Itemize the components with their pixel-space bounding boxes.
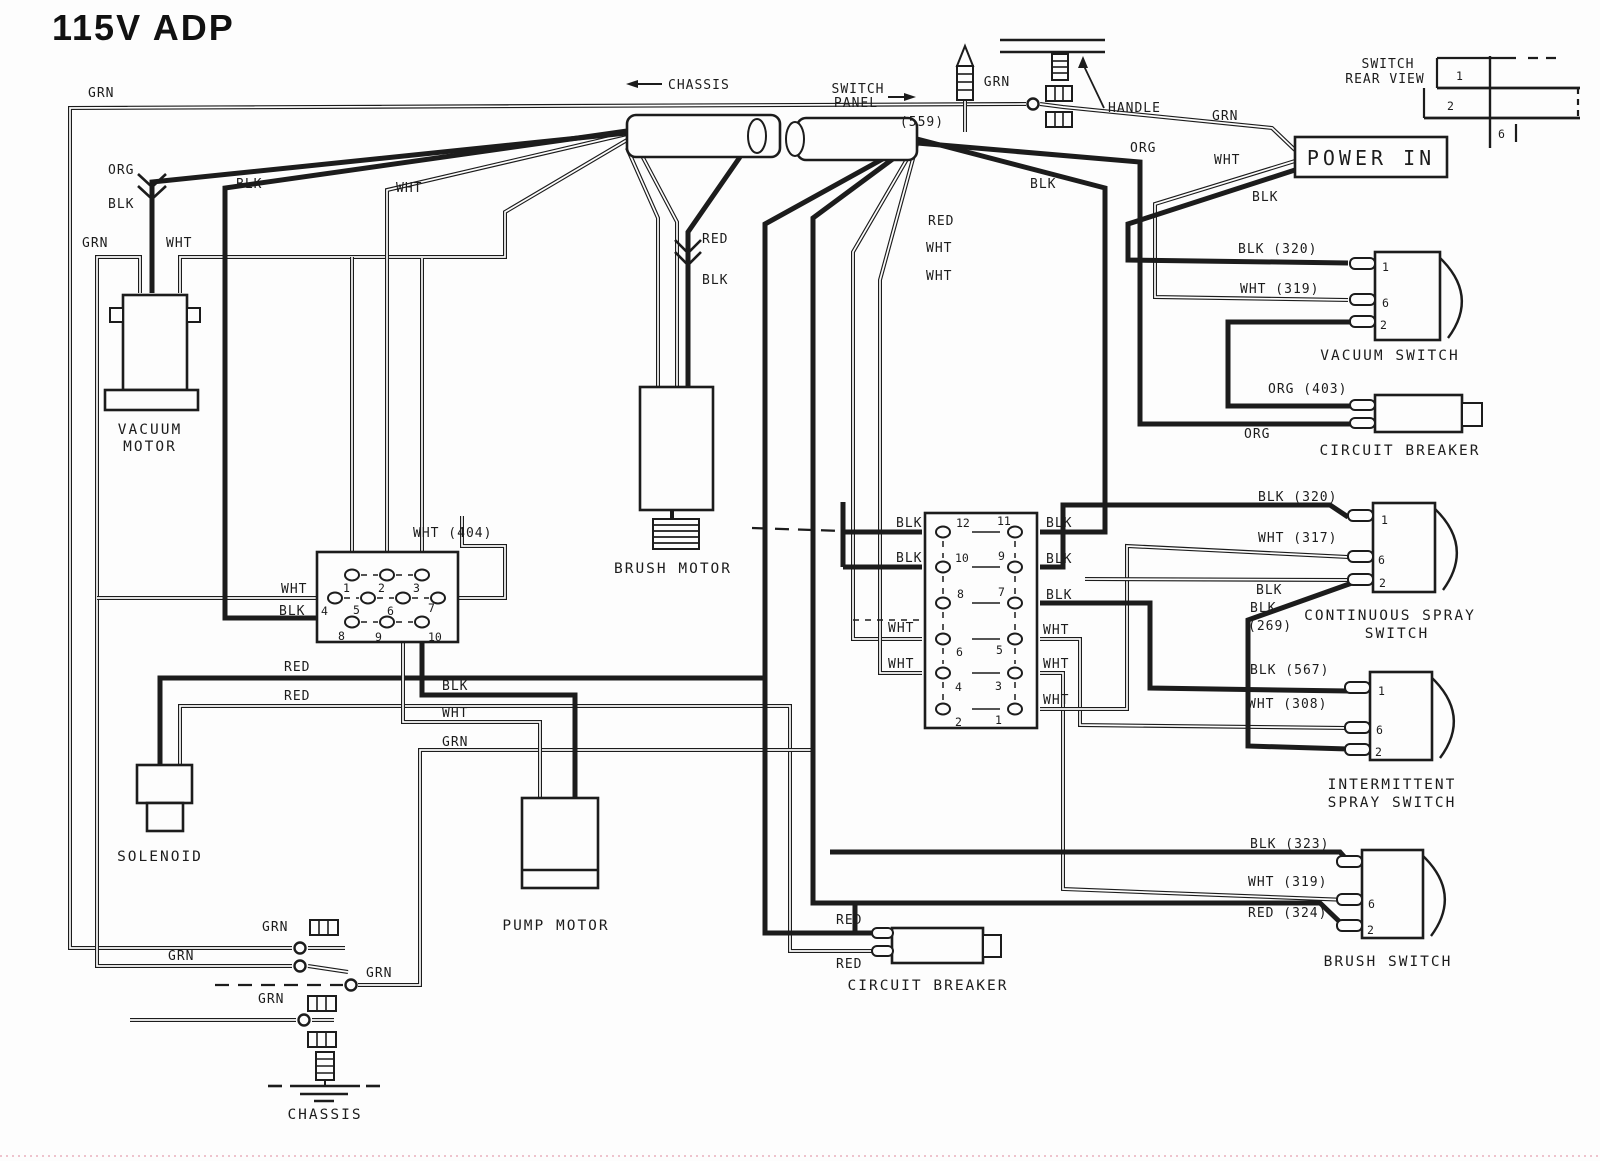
brush-switch-t6: 6 [1368, 897, 1375, 911]
wire-label: GRN [1212, 109, 1238, 124]
vacuum-switch: 1 6 2 VACUUM SWITCH [1320, 252, 1462, 364]
wire-label: GRN [82, 236, 108, 251]
vacuum-switch-t1: 1 [1382, 260, 1389, 274]
bullet-connector-icon [1028, 99, 1039, 110]
vacuum-motor-label-2: MOTOR [123, 439, 177, 455]
wire-label: BLK [702, 273, 728, 288]
lb-terminal-10: 10 [428, 630, 442, 644]
wire-label: BLK (323) [1250, 837, 1329, 852]
switch-panel-harness-sleeve: SWITCH PANEL [786, 82, 917, 160]
lb-terminal-7: 7 [428, 601, 435, 615]
wire-label: ORG (403) [1268, 382, 1347, 397]
brush-motor-label: BRUSH MOTOR [614, 561, 732, 577]
handle-assembly: HANDLE GRN (559) [900, 40, 1161, 130]
intermittent-switch-t1: 1 [1378, 684, 1385, 698]
plug-connector-icon [308, 996, 336, 1011]
wire-label: RED [928, 214, 954, 229]
rb-terminal-1: 1 [995, 713, 1002, 727]
vacuum-switch-t2: 2 [1380, 318, 1387, 332]
wire-label: BLK [279, 604, 305, 619]
plug-connector-icon [308, 1032, 336, 1047]
grn-559-label: GRN [984, 75, 1010, 90]
wire-label: BLK [1252, 190, 1278, 205]
intermittent-switch-label-2: SPRAY SWITCH [1328, 795, 1457, 811]
brush-switch-t2: 2 [1367, 923, 1374, 937]
wire-label: BLK [236, 177, 262, 192]
bullet-connector-icon [346, 980, 357, 991]
wire-label: GRN [168, 949, 194, 964]
right-terminal-block: 12 11 10 9 8 7 6 5 4 3 2 1 [925, 513, 1037, 729]
rb-terminal-3: 3 [995, 679, 1002, 693]
continuous-switch-t2: 2 [1379, 576, 1386, 590]
switch-panel-label-2: PANEL [834, 96, 878, 111]
wiring-diagram-canvas: CHASSIS SWITCH PANEL HANDLE [0, 0, 1600, 1161]
wire-label: ORG [108, 163, 134, 178]
switch-panel-label-1: SWITCH [832, 82, 885, 97]
wiring-diagram-page: CHASSIS SWITCH PANEL HANDLE [0, 0, 1600, 1161]
wire-label: RED (324) [1248, 906, 1327, 921]
brush-switch-label: BRUSH SWITCH [1324, 954, 1453, 970]
wire-label: WHT [1043, 657, 1069, 672]
wire-label: RED [836, 957, 862, 972]
chassis-harness-label: CHASSIS [668, 78, 730, 93]
wire-label: BLK [1046, 588, 1072, 603]
rb-terminal-6: 6 [956, 645, 963, 659]
brush-block-icon [653, 519, 699, 549]
power-in-label: POWER IN [1307, 146, 1435, 170]
ground-icon [268, 1086, 380, 1101]
wire-label: BLK [1256, 583, 1282, 598]
arrow-left-icon [626, 80, 638, 88]
plug-connector-icon [1046, 86, 1072, 101]
wire-label: BLK [442, 679, 468, 694]
chassis-harness-sleeve: CHASSIS [626, 78, 780, 157]
bullet-connector-icon [295, 961, 306, 972]
lb-terminal-4: 4 [321, 604, 328, 618]
lb-terminal-8: 8 [338, 629, 345, 643]
wire-label: WHT (317) [1258, 531, 1337, 546]
intermittent-switch-label-1: INTERMITTENT [1328, 777, 1457, 793]
vacuum-motor-label-1: VACUUM [118, 422, 182, 438]
lb-terminal-5: 5 [353, 603, 360, 617]
wire-label: WHT (319) [1240, 282, 1319, 297]
plug-connector-icon [1046, 112, 1072, 127]
wire-label: BLK (320) [1238, 242, 1317, 257]
lb-terminal-6: 6 [387, 604, 394, 618]
brush-motor: BRUSH MOTOR [614, 387, 732, 577]
rb-terminal-10: 10 [955, 551, 969, 565]
continuous-switch-label-2: SWITCH [1365, 626, 1429, 642]
rear-view-terminal-6: 6 [1498, 127, 1505, 141]
grn-559-ref: (559) [900, 115, 944, 130]
wire-label: (269) [1248, 619, 1292, 634]
intermittent-switch-t6: 6 [1376, 723, 1383, 737]
vacuum-switch-label: VACUUM SWITCH [1320, 348, 1460, 364]
wire-label: BLK [108, 197, 134, 212]
rb-terminal-2: 2 [955, 715, 962, 729]
rear-view-label-1: SWITCH [1362, 57, 1415, 72]
pump-motor: PUMP MOTOR [502, 798, 609, 934]
plug-connector-icon [310, 920, 338, 935]
rb-terminal-11: 11 [997, 514, 1011, 528]
wire-label: WHT [1214, 153, 1240, 168]
intermittent-spray-switch: 1 6 2 INTERMITTENT SPRAY SWITCH [1328, 672, 1457, 811]
lb-terminal-2: 2 [378, 581, 385, 595]
wire-label: WHT [888, 657, 914, 672]
wire-label: BLK [1046, 516, 1072, 531]
wire-label: GRN [262, 920, 288, 935]
page-title: 115V ADP [52, 7, 235, 48]
wire-label: ORG [1244, 427, 1270, 442]
vacuum-switch-t6: 6 [1382, 296, 1389, 310]
wire-label: ORG [1130, 141, 1156, 156]
bullet-connector-icon [299, 1015, 310, 1026]
switch-rear-view: SWITCH REAR VIEW 1 2 6 [1345, 56, 1580, 148]
wire-label: BLK (567) [1250, 663, 1329, 678]
wire-label: WHT [926, 269, 952, 284]
wire-label: WHT [442, 706, 468, 721]
circuit-breaker-right-label: CIRCUIT BREAKER [1320, 443, 1481, 459]
pump-motor-label: PUMP MOTOR [502, 918, 609, 934]
continuous-switch-t1: 1 [1381, 513, 1388, 527]
wire-label: GRN [442, 735, 468, 750]
wiring-thick [152, 131, 1352, 933]
arrow-up-icon [1078, 56, 1088, 68]
wire-label: WHT [1043, 693, 1069, 708]
wire-label: GRN [366, 966, 392, 981]
wire-label: BLK [1046, 552, 1072, 567]
wire-label: WHT (319) [1248, 875, 1327, 890]
lb-terminal-1: 1 [343, 581, 350, 595]
wire-label: RED [284, 689, 310, 704]
wire-label: BLK (320) [1258, 490, 1337, 505]
rb-terminal-9: 9 [998, 549, 1005, 563]
wire-label: WHT [888, 621, 914, 636]
rear-view-label-2: REAR VIEW [1345, 72, 1424, 87]
bullet-connector-icon [295, 943, 306, 954]
wire-label: BLK [896, 516, 922, 531]
vacuum-motor: VACUUM MOTOR [105, 295, 200, 455]
wire-label: RED [284, 660, 310, 675]
wire-label: RED [836, 913, 862, 928]
wire-label: GRN [258, 992, 284, 1007]
bolt-icon [957, 46, 973, 100]
screw-icon [1052, 54, 1068, 80]
chassis-ground-label: CHASSIS [287, 1107, 362, 1123]
continuous-switch-t6: 6 [1378, 553, 1385, 567]
left-terminal-block: 1 2 3 4 5 6 7 8 9 10 [317, 552, 458, 644]
wire-label: WHT [926, 241, 952, 256]
wire-label: GRN [88, 86, 114, 101]
rear-view-terminal-2: 2 [1447, 99, 1454, 113]
circuit-breaker-bottom-label: CIRCUIT BREAKER [848, 978, 1009, 994]
solenoid-label: SOLENOID [117, 849, 203, 865]
lb-terminal-9: 9 [375, 630, 382, 644]
continuous-switch-label-1: CONTINUOUS SPRAY [1304, 608, 1476, 624]
power-in-block: POWER IN [1295, 137, 1447, 177]
intermittent-switch-t2: 2 [1375, 745, 1382, 759]
wire-label: RED [702, 232, 728, 247]
wire-label: WHT (308) [1248, 697, 1327, 712]
solenoid: SOLENOID [117, 765, 203, 865]
rb-terminal-12: 12 [956, 516, 970, 530]
continuous-spray-switch: 1 6 2 CONTINUOUS SPRAY SWITCH [1304, 503, 1476, 642]
wire-label: WHT [166, 236, 192, 251]
circuit-breaker-bottom: CIRCUIT BREAKER [848, 928, 1009, 994]
wire-label: BLK [896, 551, 922, 566]
wire-label: WHT [281, 582, 307, 597]
rb-terminal-4: 4 [955, 680, 962, 694]
rb-terminal-5: 5 [996, 643, 1003, 657]
handle-label: HANDLE [1108, 101, 1161, 116]
arrow-right-icon [904, 93, 916, 101]
lb-terminal-3: 3 [413, 581, 420, 595]
brush-switch: 6 2 BRUSH SWITCH [1324, 850, 1453, 970]
screw-icon [316, 1052, 334, 1086]
wire-label: BLK [1250, 601, 1276, 616]
wire-label: WHT [1043, 623, 1069, 638]
rear-view-terminal-1: 1 [1456, 69, 1463, 83]
wire-label: BLK [1030, 177, 1056, 192]
rb-terminal-7: 7 [998, 585, 1005, 599]
wire-label: WHT [396, 181, 422, 196]
wire-label: WHT (404) [413, 526, 492, 541]
rb-terminal-8: 8 [957, 587, 964, 601]
